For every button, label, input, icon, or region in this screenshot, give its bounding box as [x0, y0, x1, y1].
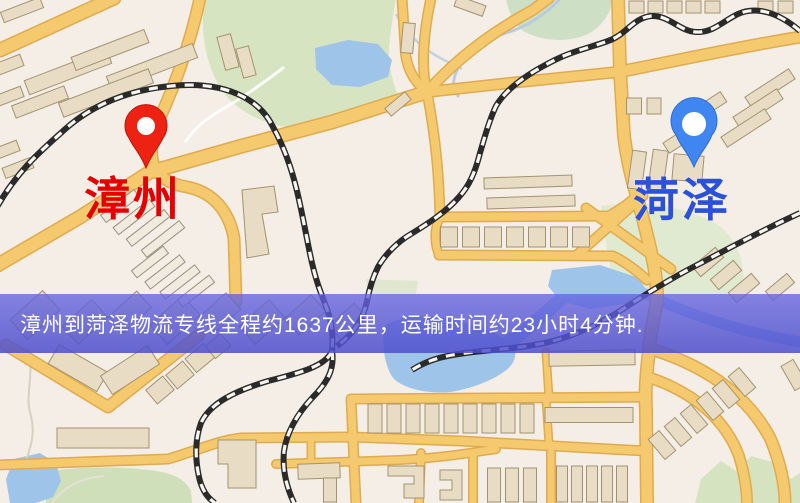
- origin-city-label: 漳州: [84, 177, 182, 223]
- origin-pin-icon: [125, 105, 167, 168]
- route-summary-text: 漳州到菏泽物流专线全程约1637公里，运输时间约23小时4分钟.: [20, 309, 644, 339]
- logistics-route-map: 漳州 菏泽 漳州到菏泽物流专线全程约1637公里，运输时间约23小时4分钟.: [0, 0, 800, 503]
- destination-city-label: 菏泽: [633, 178, 731, 224]
- route-summary-banner: 漳州到菏泽物流专线全程约1637公里，运输时间约23小时4分钟.: [0, 294, 800, 353]
- map-image: [0, 0, 800, 503]
